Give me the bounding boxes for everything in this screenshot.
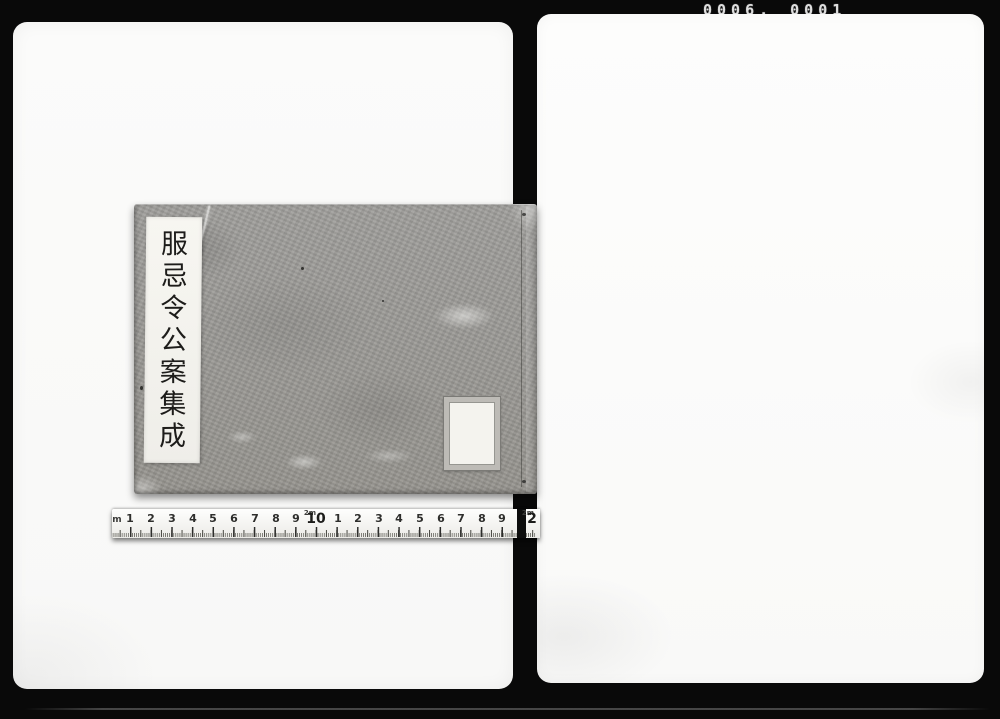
cover-speck bbox=[301, 267, 304, 270]
tape-number: 3 bbox=[168, 512, 176, 525]
tape-number: 9 bbox=[292, 512, 300, 525]
cover-speck bbox=[382, 300, 384, 302]
tape-number-major: 2 bbox=[527, 511, 537, 527]
tape-number: 3 bbox=[375, 512, 383, 525]
tape-number: 8 bbox=[272, 512, 280, 525]
blank-paste-label-inner bbox=[449, 402, 495, 465]
binding-stitch bbox=[522, 213, 526, 216]
right-backing-page bbox=[537, 14, 984, 683]
title-char: 忌 bbox=[160, 261, 187, 293]
spine-edge-strip bbox=[526, 206, 537, 492]
tape-number: 2 bbox=[354, 512, 362, 525]
tape-number: 7 bbox=[251, 512, 259, 525]
tape-unit-label: m bbox=[112, 515, 121, 525]
tape-number: 7 bbox=[457, 512, 465, 525]
tape-number: 9 bbox=[498, 512, 506, 525]
tape-number-major: 10 bbox=[306, 511, 325, 527]
title-char: 公 bbox=[159, 325, 186, 357]
blank-paste-label bbox=[443, 396, 501, 471]
book-cover: 服 忌 令 公 案 集 成 bbox=[134, 204, 537, 494]
title-char: 集 bbox=[159, 389, 186, 421]
title-char: 案 bbox=[159, 357, 186, 389]
title-char: 服 bbox=[160, 229, 187, 261]
microfilm-photo-stage: 0006. 0001 服 忌 令 公 案 集 成 m 1 bbox=[0, 0, 1000, 719]
tape-number: 5 bbox=[416, 512, 424, 525]
tape-number: 4 bbox=[189, 512, 197, 525]
tape-number: 8 bbox=[478, 512, 486, 525]
spine-fold-line bbox=[521, 210, 522, 487]
tape-ticks bbox=[112, 527, 536, 537]
tape-measure: m 1 2 3 4 5 6 7 8 9 2m 10 1 2 3 4 5 6 7 … bbox=[112, 509, 540, 538]
binding-stitch bbox=[522, 480, 526, 483]
tape-number: 1 bbox=[126, 512, 134, 525]
title-label: 服 忌 令 公 案 集 成 bbox=[144, 217, 203, 464]
tape-number: 6 bbox=[230, 512, 238, 525]
tape-number: 2 bbox=[147, 512, 155, 525]
title-char: 令 bbox=[160, 293, 187, 325]
tape-number: 4 bbox=[395, 512, 403, 525]
tape-number: 6 bbox=[437, 512, 445, 525]
title-char: 成 bbox=[158, 421, 185, 453]
tape-number: 1 bbox=[334, 512, 342, 525]
tape-number: 5 bbox=[209, 512, 217, 525]
scan-artifact-line bbox=[25, 708, 990, 710]
cover-speck bbox=[140, 386, 143, 390]
